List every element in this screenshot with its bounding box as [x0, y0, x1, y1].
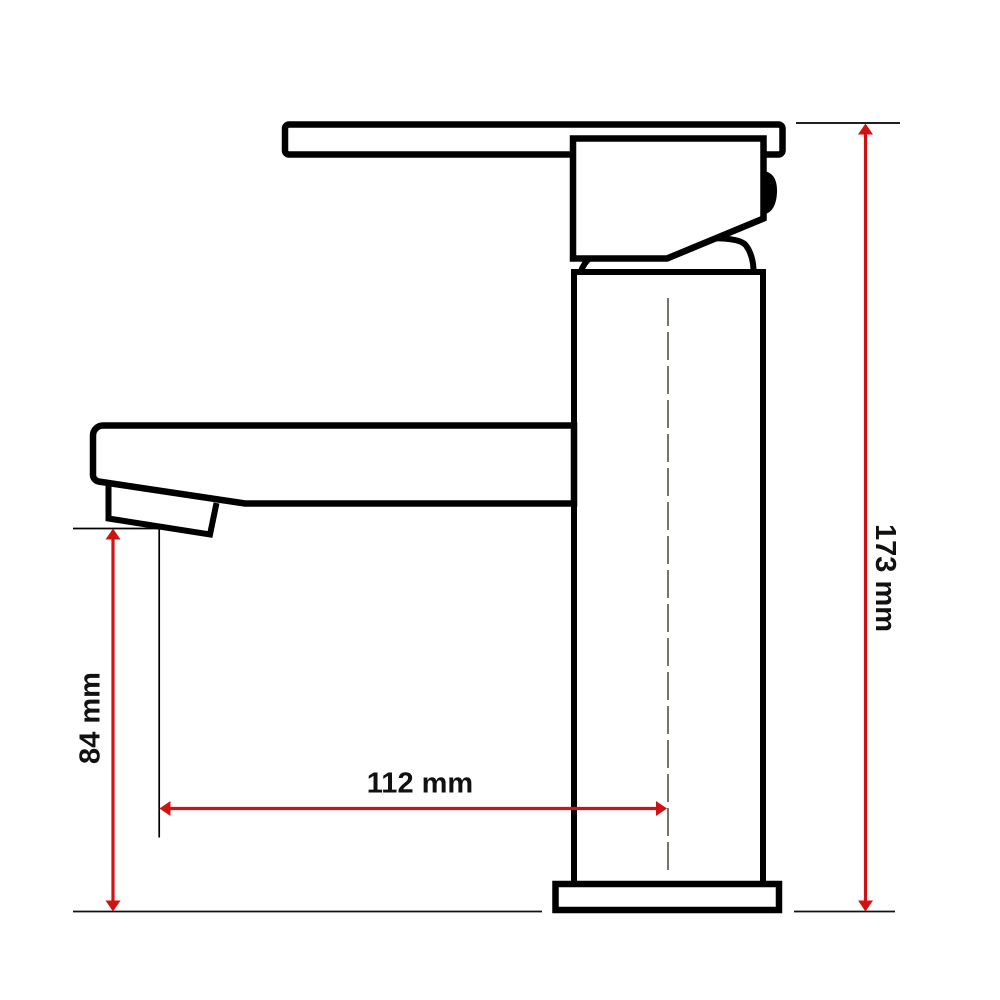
svg-text:112 mm: 112 mm: [367, 768, 473, 800]
svg-text:173 mm: 173 mm: [869, 524, 901, 632]
svg-text:84 mm: 84 mm: [75, 672, 107, 764]
